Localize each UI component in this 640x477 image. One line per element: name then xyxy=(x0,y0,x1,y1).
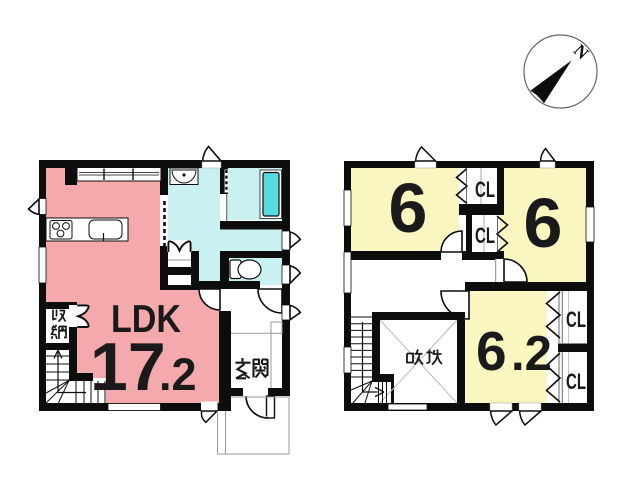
svg-text:CL: CL xyxy=(566,307,586,332)
svg-text:.2: .2 xyxy=(159,349,197,400)
svg-text:6: 6 xyxy=(476,320,507,382)
svg-text:CL: CL xyxy=(566,369,586,394)
svg-text:CL: CL xyxy=(475,223,495,248)
svg-text:6: 6 xyxy=(524,184,563,262)
svg-text:6: 6 xyxy=(389,169,428,247)
svg-text:CL: CL xyxy=(475,177,495,202)
svg-text:17: 17 xyxy=(90,329,166,405)
svg-text:.2: .2 xyxy=(511,327,552,381)
